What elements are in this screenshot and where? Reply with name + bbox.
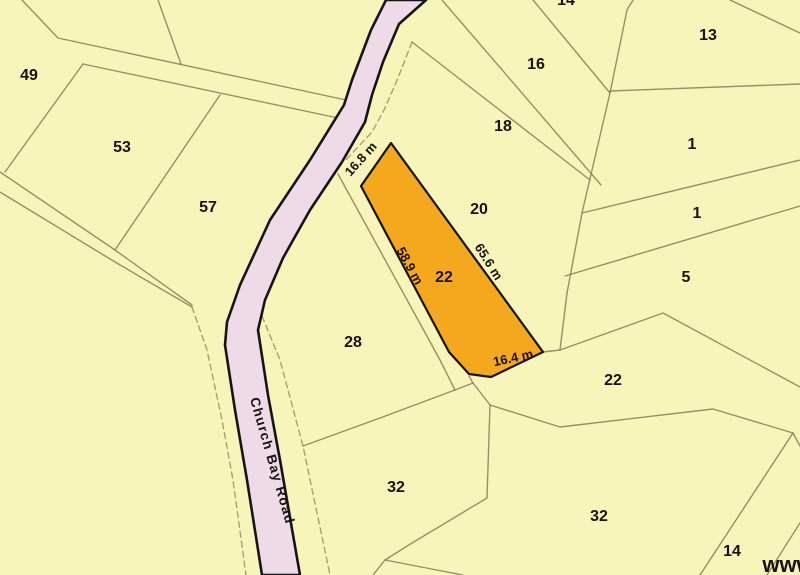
parcel-label-18: 18 xyxy=(494,118,512,135)
parcel-label-16: 16 xyxy=(527,56,545,73)
parcel-label-22-east: 22 xyxy=(604,372,622,389)
watermark-text: www xyxy=(761,552,800,575)
parcel-label-14-clipped-top: 14 xyxy=(557,0,575,9)
parcel-label-5: 5 xyxy=(682,269,691,286)
parcel-label-20: 20 xyxy=(470,201,488,218)
parcel-label-1b: 1 xyxy=(693,205,702,222)
parcel-label-32-west: 32 xyxy=(387,479,405,496)
parcel-label-14: 14 xyxy=(723,543,741,560)
map-viewport: 495357161820222813115223232141416.8 m58.… xyxy=(0,0,800,575)
parcel-label-1a: 1 xyxy=(688,136,697,153)
parcel-label-32-east: 32 xyxy=(590,508,608,525)
parcel-label-28: 28 xyxy=(344,334,362,351)
parcel-label-22-highlight: 22 xyxy=(435,269,453,286)
parcel-label-57: 57 xyxy=(199,199,217,216)
parcel-label-13: 13 xyxy=(699,27,717,44)
parcel-label-49: 49 xyxy=(20,67,38,84)
map-svg: 495357161820222813115223232141416.8 m58.… xyxy=(0,0,800,575)
parcel-label-53: 53 xyxy=(113,139,131,156)
